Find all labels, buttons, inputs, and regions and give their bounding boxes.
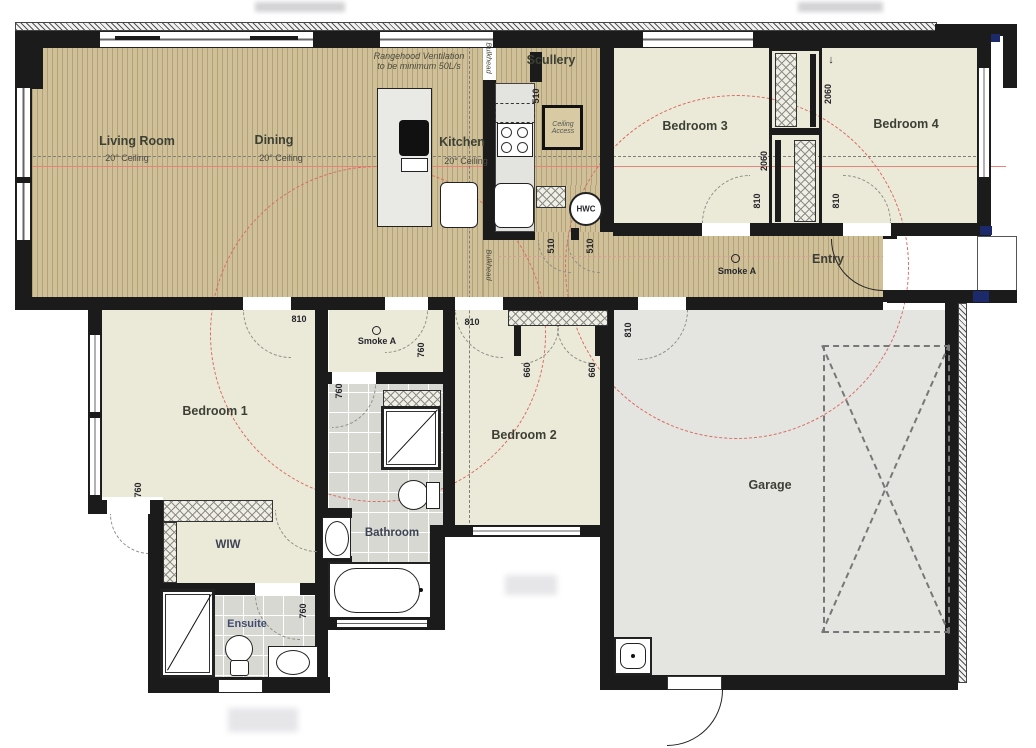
oven (401, 158, 428, 172)
dim-760: 760 (133, 482, 143, 497)
ceiling-access-label: Ceiling Access (544, 121, 582, 135)
door-gap-bedroom2 (455, 297, 503, 310)
wall (15, 297, 105, 310)
room-label-bedroom2: Bedroom 2 (491, 428, 556, 442)
door-gap-entry (883, 239, 897, 290)
door-gap (107, 500, 150, 514)
wall (571, 228, 579, 240)
ceiling-note-dining: 20° Ceiling (259, 153, 303, 163)
scullery-sink (494, 183, 534, 228)
watermark (228, 708, 298, 732)
door-gap-bedroom1 (243, 297, 291, 310)
window-living-left-1 (16, 88, 31, 177)
wall (600, 310, 614, 690)
bulkhead-label: Bulkhead (485, 249, 494, 280)
wardrobe-bedroom2 (508, 310, 608, 326)
room-label-garage: Garage (748, 478, 791, 492)
ensuite-toilet-base (230, 660, 249, 676)
door-gap-hall (385, 297, 428, 310)
cladding-band-right (958, 303, 967, 683)
room-label-bathroom: Bathroom (365, 527, 419, 539)
dim-810: 810 (623, 322, 633, 337)
wardrobe-shelves-bedroom3 (775, 53, 797, 127)
cooktop-rangehood (399, 120, 429, 156)
wall (315, 310, 328, 693)
dim-810: 810 (831, 193, 841, 208)
smoke-detector-icon (372, 326, 381, 335)
window-bedroom1-left-1 (89, 335, 101, 412)
room-label-living: Living Room (99, 134, 175, 148)
bathtub-tap (419, 588, 423, 592)
wall (430, 525, 445, 630)
floor-plan: Living Room 20° Ceiling Dining 20° Ceili… (0, 0, 1036, 748)
smoke-label: Smoke A (358, 336, 396, 346)
burner (517, 127, 528, 138)
wardrobe-divider (769, 128, 822, 135)
wardrobe-slider (775, 140, 781, 222)
dim-660: 660 (522, 362, 532, 377)
smoke-detector-icon (731, 254, 740, 263)
wiw-shelves-left (163, 522, 177, 583)
parapet-step (1003, 24, 1017, 88)
cropped-dimension-text (798, 2, 883, 12)
wall (443, 310, 455, 525)
door-gap-garage (638, 297, 686, 310)
wardrobe-jamb (595, 326, 602, 356)
dim-510: 510 (546, 238, 556, 253)
ceiling-note-kitchen: 20° Ceiling (444, 156, 488, 166)
garage-door-swing (667, 690, 723, 746)
basin-bowl (325, 521, 349, 556)
door-swing-arc (110, 514, 150, 554)
wall (313, 31, 380, 48)
fridge (440, 182, 478, 228)
wall (493, 31, 643, 48)
window-bedroom4-right (978, 68, 990, 177)
wardrobe-jamb (514, 326, 521, 356)
ceiling-note-living: 20° Ceiling (105, 153, 149, 163)
burner (501, 127, 512, 138)
wall-tag (980, 226, 992, 235)
shower-wall-hatch (383, 390, 441, 407)
ensuite-vanity-bowl (276, 650, 310, 675)
room-label-kitchen: Kitchen (439, 135, 485, 149)
window-living-left-2 (16, 183, 31, 240)
room-label-scullery: Scullery (527, 53, 576, 67)
window-kitchen-top (380, 31, 493, 48)
door-gap-bedroom3 (702, 223, 750, 236)
room-label-dining: Dining (255, 133, 294, 147)
door-gap-ensuite (255, 583, 300, 595)
dim-760: 760 (298, 603, 308, 618)
window-bedroom1-left-2 (89, 418, 101, 495)
plumbing-duct (218, 679, 263, 693)
cropped-dimension-text (255, 2, 345, 12)
wall (600, 675, 958, 690)
rangehood-note: Rangehood Ventilation to be minimum 50L/… (369, 51, 469, 71)
ensuite-toilet-bowl (225, 635, 253, 663)
toilet-bowl (398, 480, 429, 510)
wall (115, 36, 160, 40)
dim-760: 760 (334, 383, 344, 398)
scullery-bench-dashed (495, 103, 535, 123)
dim-810: 810 (752, 193, 762, 208)
toilet-cistern (426, 482, 440, 509)
room-label-entry: Entry (812, 252, 844, 266)
wall-corner-block (15, 31, 43, 89)
burner (501, 142, 512, 153)
hwc-cabinet (536, 186, 566, 208)
wardrobe-shelves-bedroom4 (794, 140, 816, 222)
dim-810: 810 (464, 317, 479, 327)
bulkhead-label: Bulkhead (485, 42, 494, 73)
dim-510: 510 (531, 88, 541, 103)
dim-660: 660 (587, 362, 597, 377)
dim-810: 810 (291, 314, 306, 324)
window-bedroom3-top (643, 31, 753, 48)
watermark (505, 575, 557, 595)
slide-arrow: ↓ (828, 54, 834, 66)
smoke-label: Smoke A (718, 266, 756, 276)
room-label-wiw: WIW (216, 539, 241, 551)
burner (517, 142, 528, 153)
dim-2060: 2060 (823, 84, 833, 104)
wall-tag (973, 291, 989, 302)
dim-760: 760 (416, 342, 426, 357)
dim-510: 510 (585, 238, 595, 253)
door-gap-bathroom (332, 372, 376, 384)
room-label-bedroom4: Bedroom 4 (873, 117, 938, 131)
hwc-label: HWC (576, 205, 595, 214)
wardrobe-slider (810, 54, 816, 127)
wall (250, 36, 298, 40)
bathtub-inner (334, 568, 420, 613)
room-label-bedroom3: Bedroom 3 (662, 119, 727, 133)
room-label-ensuite: Ensuite (227, 618, 267, 630)
window-bathroom-bottom (337, 619, 427, 628)
cladding-band-top (15, 22, 937, 31)
garage-door-leaf (667, 676, 722, 690)
wiw-shelves-top (163, 500, 273, 522)
dim-2060: 2060 (759, 151, 769, 171)
door-gap-bedroom4 (843, 223, 891, 236)
room-label-bedroom1: Bedroom 1 (182, 404, 247, 418)
laundry-tub-drain (631, 654, 635, 658)
wall (887, 290, 1017, 303)
window-bedroom2-bottom (473, 526, 580, 536)
